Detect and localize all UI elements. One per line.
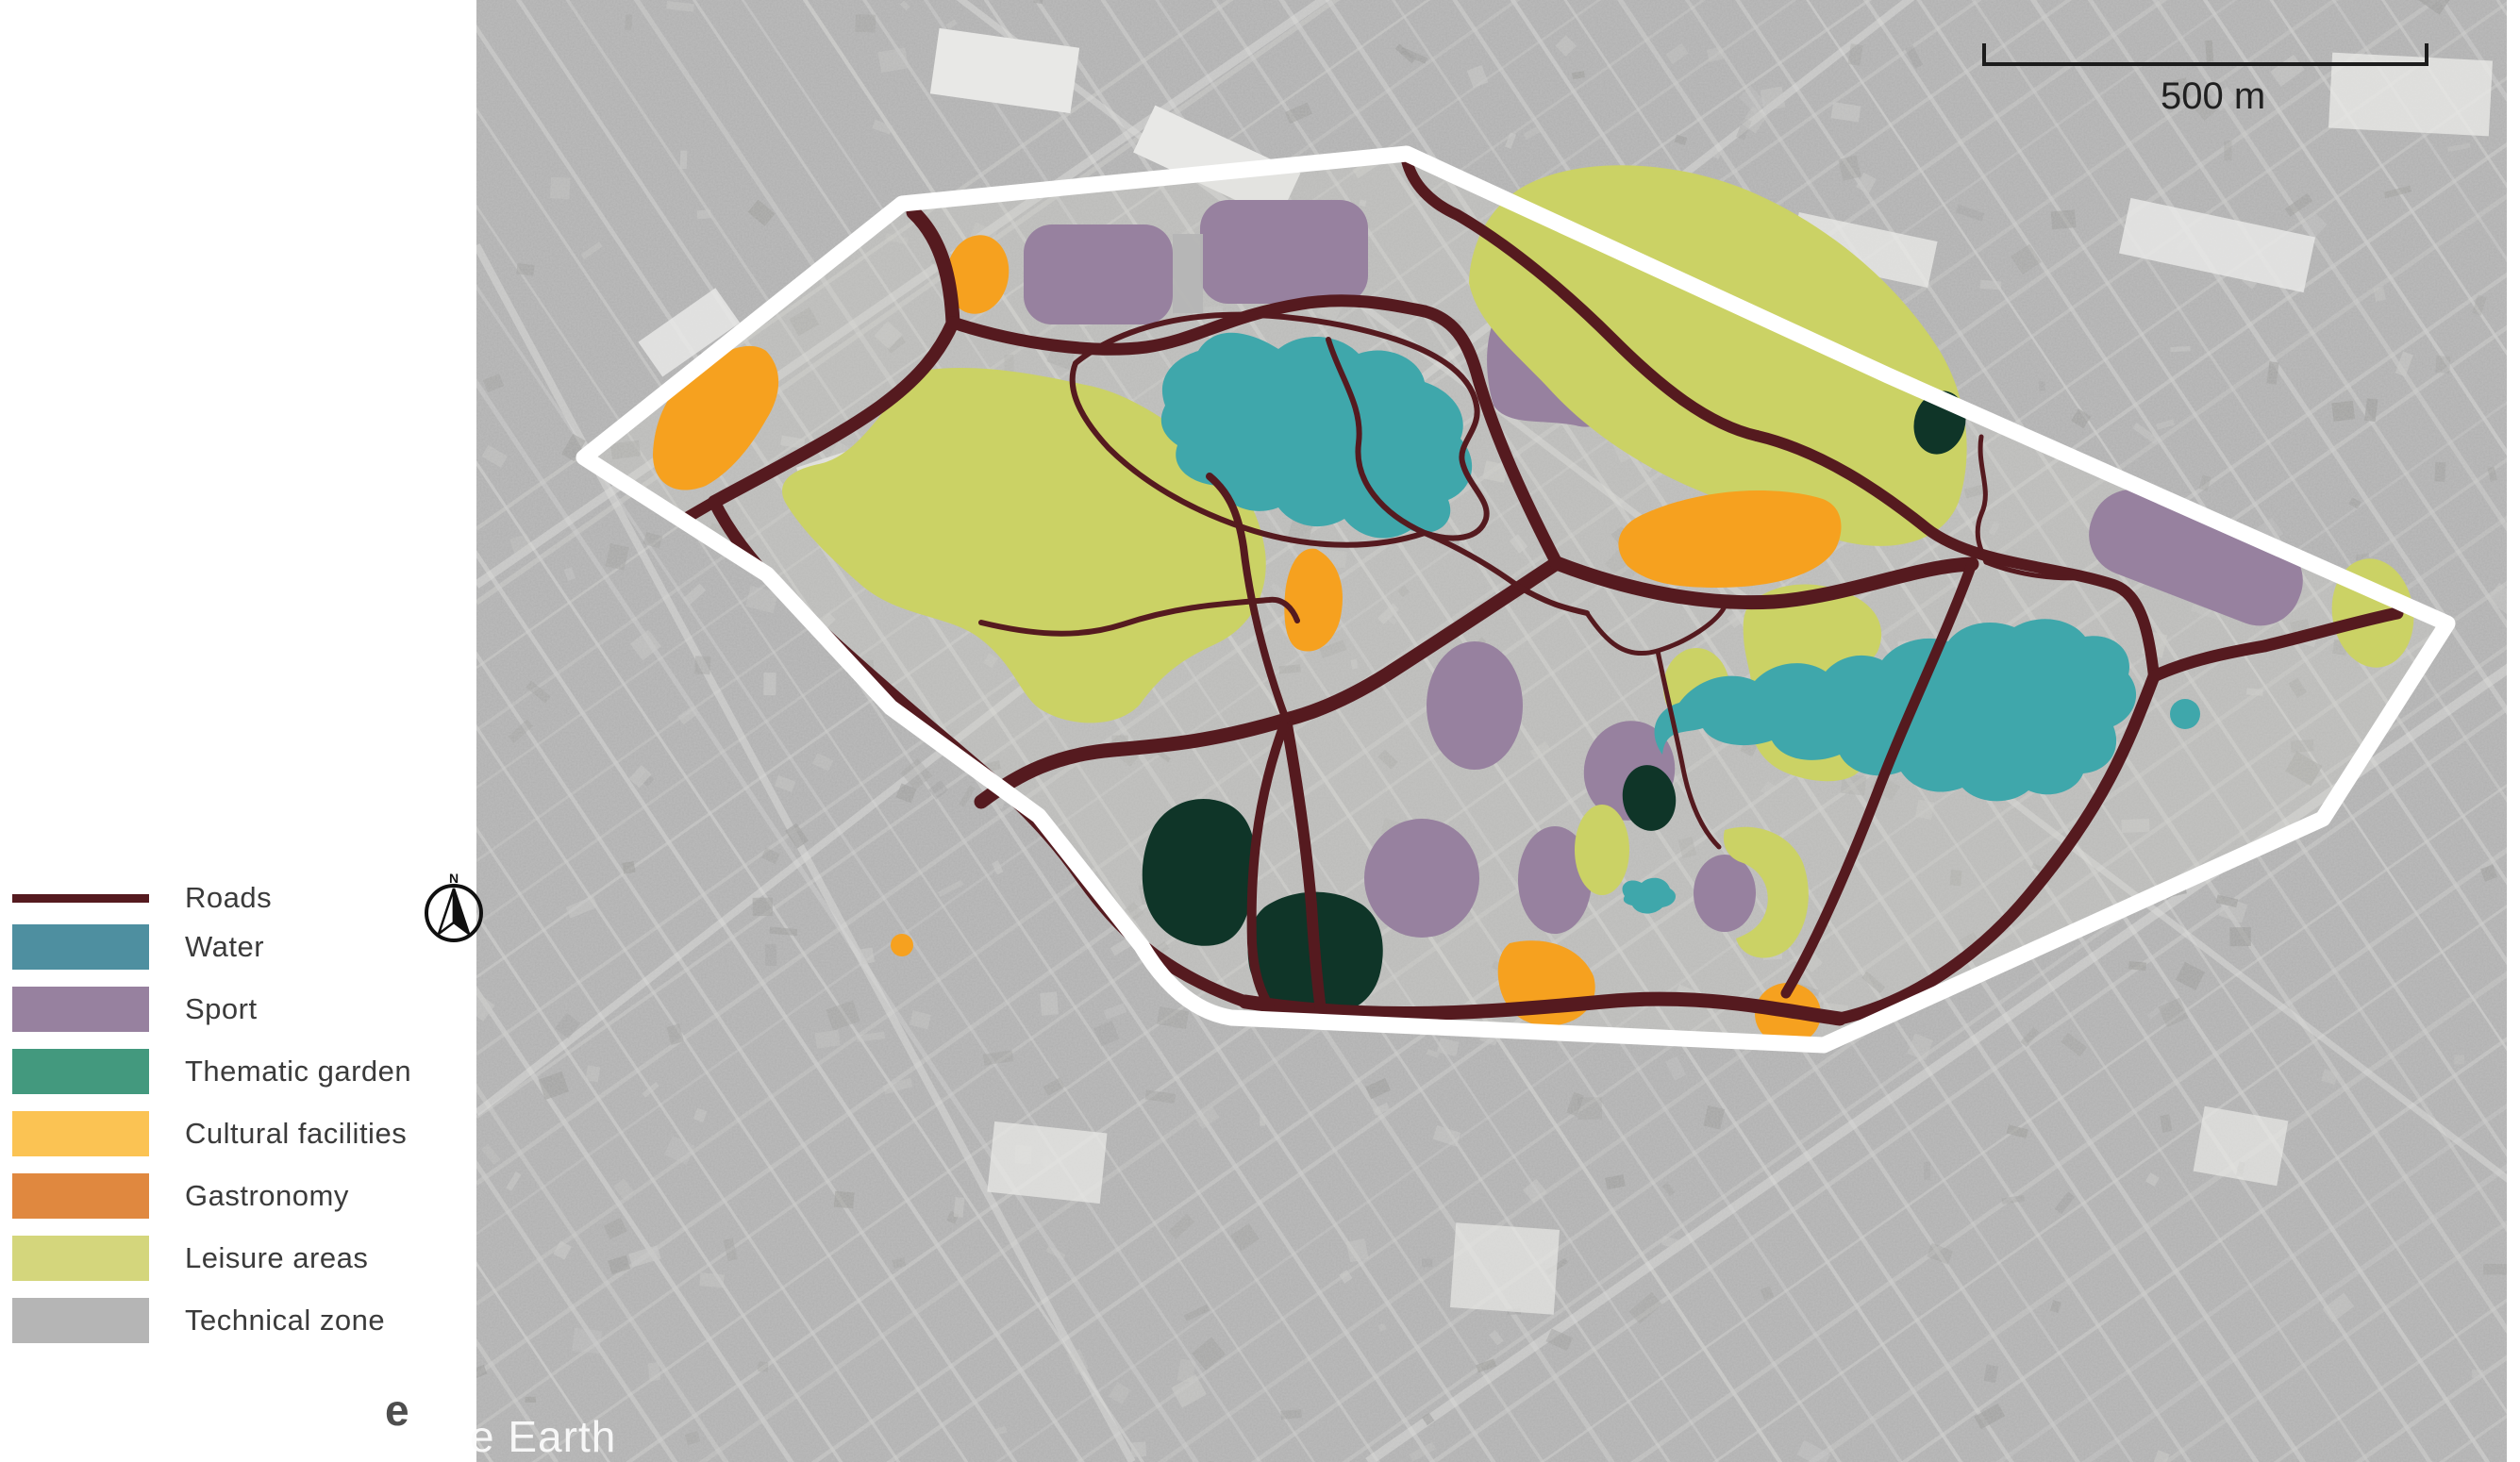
zone-cultural-dot [891,934,913,956]
legend-label: Sport [185,992,258,1026]
legend-swatch-water [12,924,149,970]
legend-label: Technical zone [185,1304,385,1337]
legend-swatch-leisure-areas [12,1236,149,1281]
zone-sport [1694,855,1756,932]
legend-label: Leisure areas [185,1241,368,1275]
map-canvas [0,0,2520,1462]
zone-sport [1024,224,1173,324]
legend-item-cultural-facilities: Cultural facilities [12,1111,407,1156]
legend-label: Cultural facilities [185,1117,407,1151]
zone-technical [1173,234,1203,313]
legend-swatch-technical-zone [12,1298,149,1343]
legend-item-technical-zone: Technical zone [12,1298,385,1343]
zone-leisure [1575,805,1629,895]
legend-item-gastronomy: Gastronomy [12,1173,349,1219]
legend-swatch-thematic-garden [12,1049,149,1094]
legend-swatch-gastronomy [12,1173,149,1219]
zone-water-pond-dot [2170,699,2200,729]
legend-label: Gastronomy [185,1179,349,1213]
legend-item-leisure-areas: Leisure areas [12,1236,368,1281]
caption-fragment: e [385,1385,409,1436]
legend-item-sport: Sport [12,987,258,1032]
legend-label: Water [185,930,264,964]
legend-item-thematic-garden: Thematic garden [12,1049,411,1094]
scale-bar-label: 500 m [2161,75,2265,118]
zone-sport [1200,200,1368,304]
legend-swatch-cultural-facilities [12,1111,149,1156]
legend-item-roads: Roads [12,875,272,921]
park-plan-map: 500 m N Roads Water Sport Thematic garde… [0,0,2520,1462]
legend-item-water: Water [12,924,264,970]
zone-sport [1364,819,1479,938]
imagery-watermark: e Earth [470,1411,616,1462]
legend-swatch-roads [12,894,149,903]
legend-label: Thematic garden [185,1055,411,1088]
legend-swatch-sport [12,987,149,1032]
north-arrow-icon: N [411,866,496,953]
zone-sport [1427,641,1523,770]
north-letter: N [449,871,459,886]
legend-label: Roads [185,881,272,915]
zone-thematic-garden [1143,799,1256,946]
zones-technical [1173,234,1203,313]
